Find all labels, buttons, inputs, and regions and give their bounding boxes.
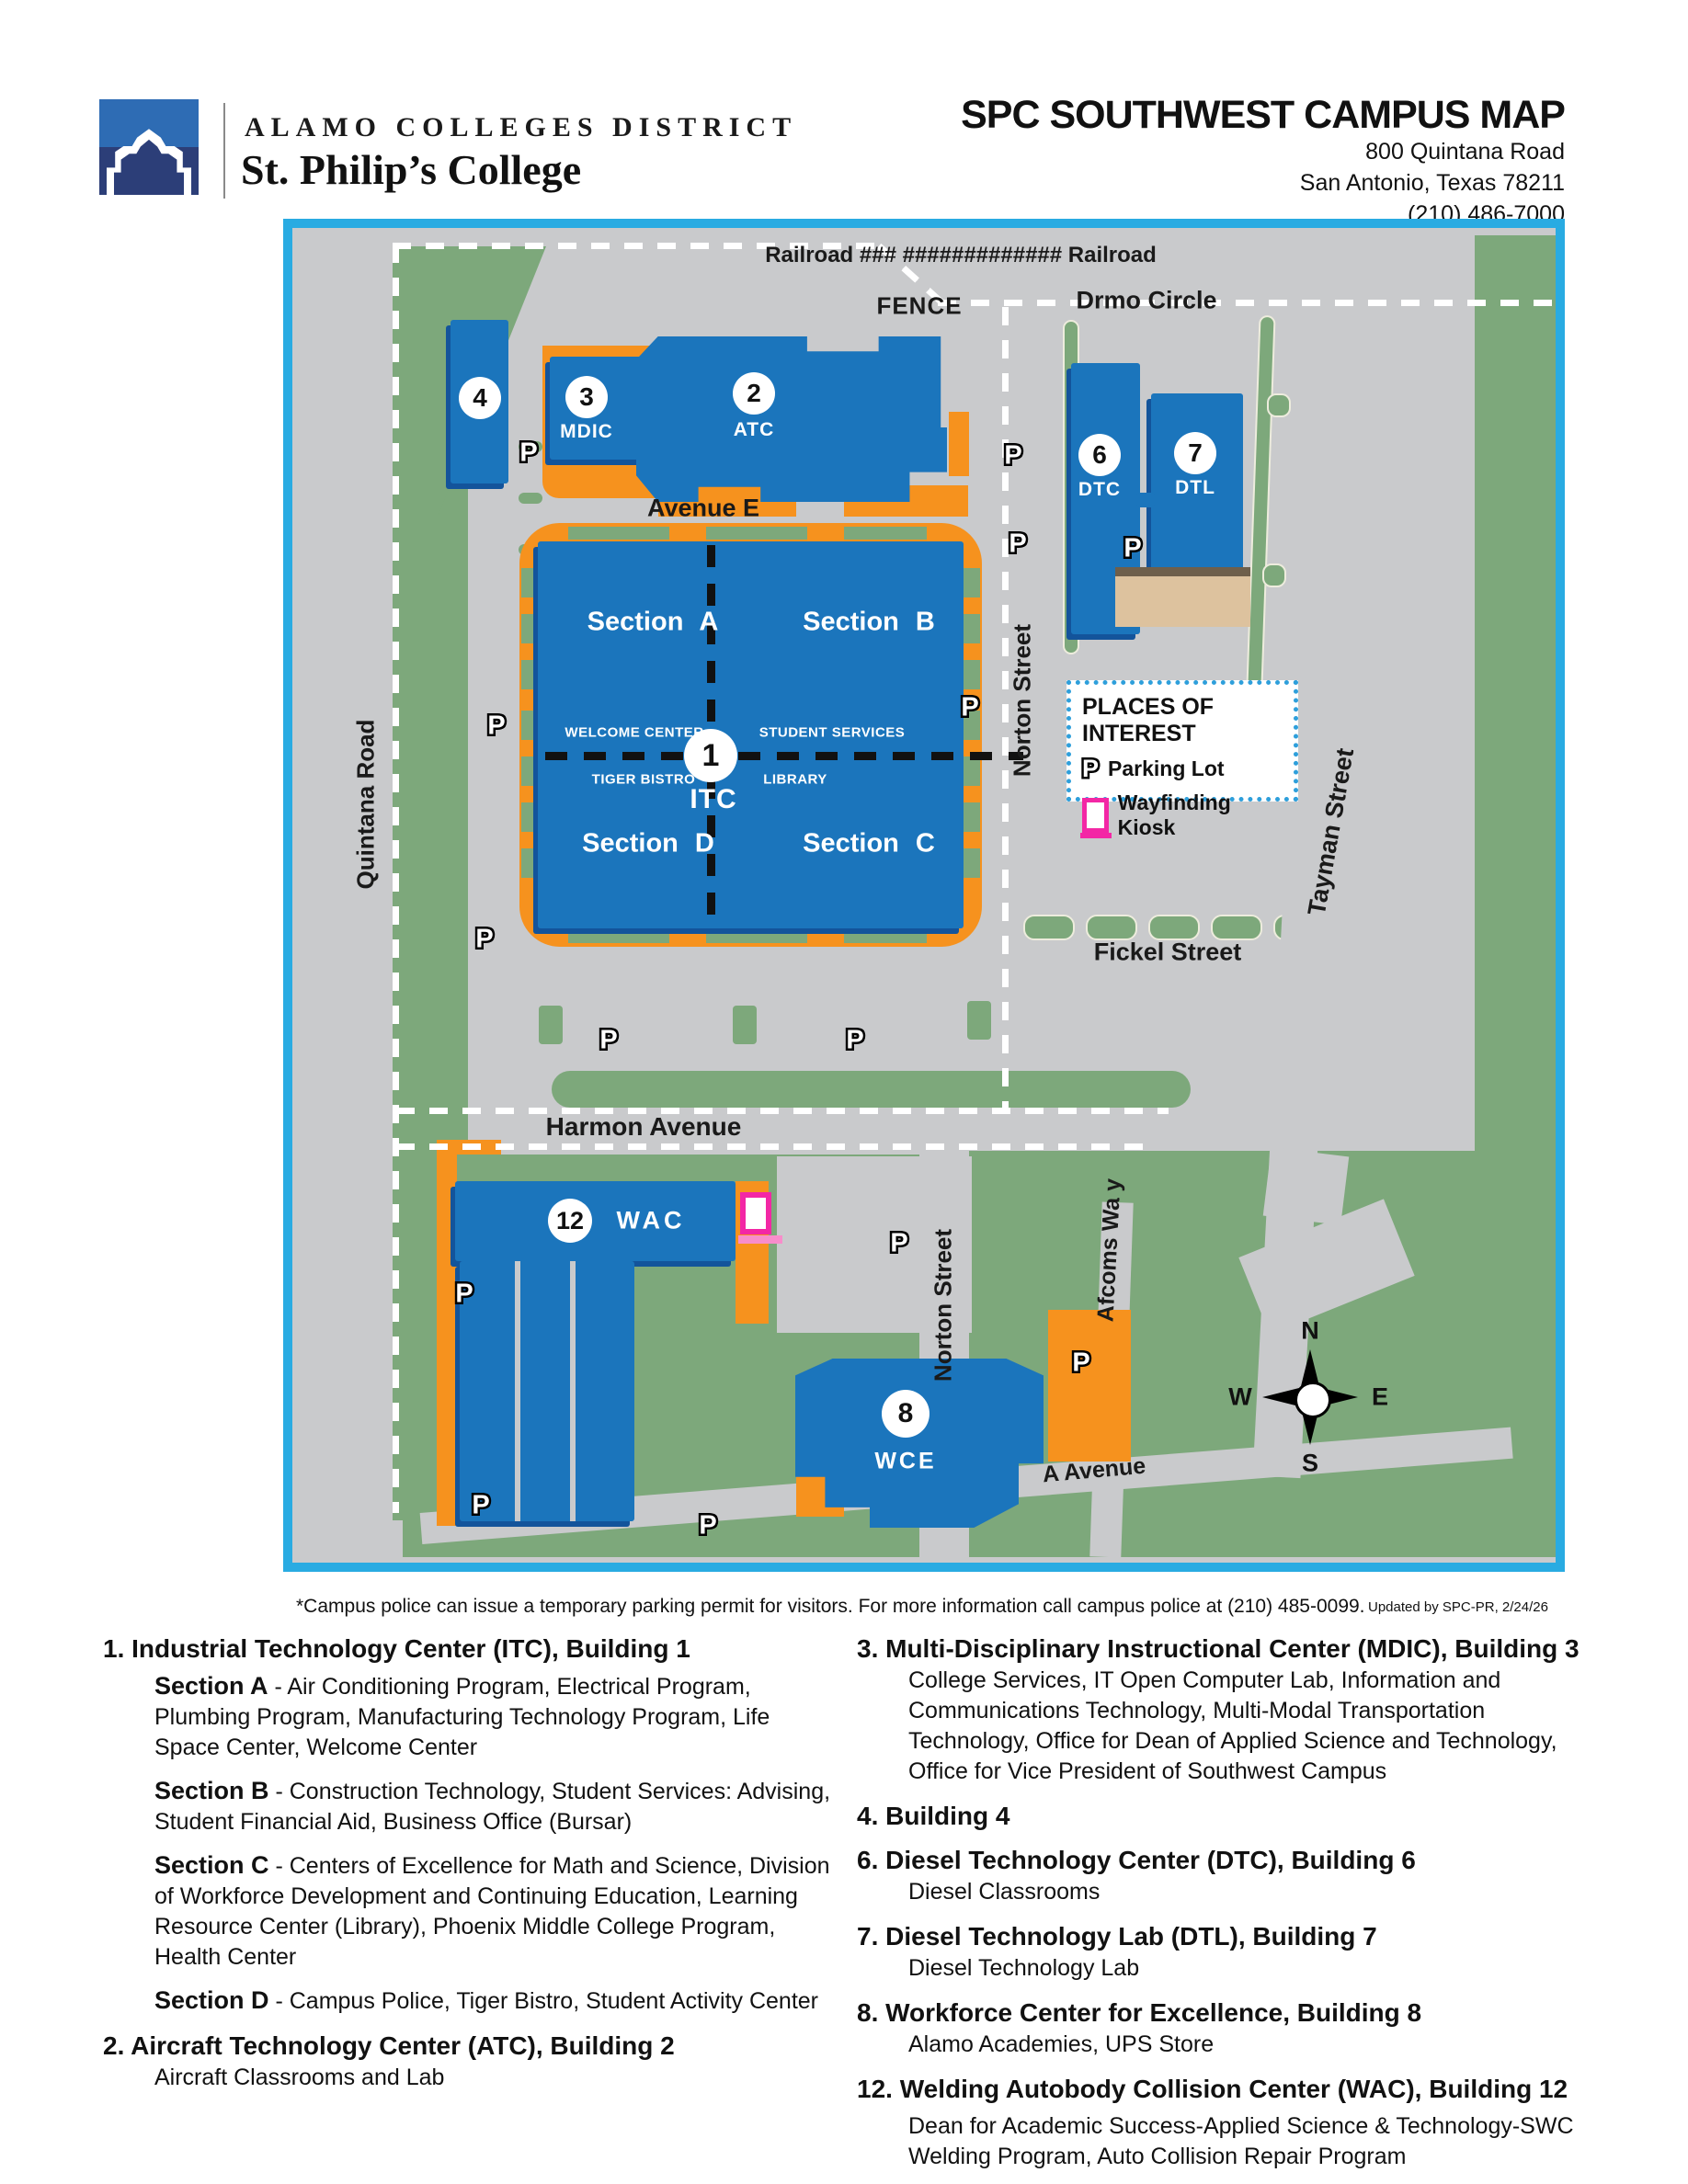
alamo-silhouette-inner bbox=[114, 136, 184, 195]
dtc-code: DTC bbox=[1078, 479, 1121, 501]
parking-marker: P bbox=[455, 1280, 473, 1310]
directory-item: Section B - Construction Technology, Stu… bbox=[154, 1776, 838, 1837]
parking-marker: P bbox=[519, 438, 537, 469]
alamo-colleges-logo bbox=[99, 99, 199, 195]
dtc-badge: 6 bbox=[1078, 434, 1121, 476]
parking-marker: P bbox=[1004, 441, 1021, 472]
ring-tooth bbox=[568, 930, 669, 943]
campus-map: Section A Section B Section D Section C … bbox=[283, 219, 1565, 1572]
itc-welcome-center-label: WELCOME CENTER bbox=[565, 725, 703, 741]
directory-entry: 7. Diesel Technology Lab (DTL), Building… bbox=[857, 1922, 1592, 1984]
wac-slab-gap bbox=[570, 1261, 576, 1521]
mdic-code: MDIC bbox=[560, 421, 613, 443]
directory-item: Alamo Academies, UPS Store bbox=[908, 2030, 1592, 2060]
building-tan bbox=[1115, 567, 1250, 627]
green-harmon-band bbox=[552, 1071, 1191, 1108]
fence-line bbox=[938, 300, 1556, 306]
address-line-1: 800 Quintana Road bbox=[961, 136, 1565, 167]
parking-marker: P bbox=[475, 925, 493, 955]
updated-note: Updated by SPC-PR, 2/24/26 bbox=[1368, 1599, 1548, 1615]
parking-orange-wac-west bbox=[437, 1140, 457, 1526]
directory-entry-title: 12. Welding Autobody Collision Center (W… bbox=[857, 2075, 1592, 2104]
compass-e-label: E bbox=[1372, 1383, 1388, 1412]
itc-section-c-label: Section C bbox=[803, 829, 935, 859]
header-divider bbox=[223, 103, 225, 199]
norton-street-top-label: Norton Street bbox=[1009, 624, 1037, 777]
drmo-circle-label: Drmo Circle bbox=[1076, 287, 1216, 315]
green-pill bbox=[519, 493, 542, 504]
building-wac-low bbox=[460, 1261, 634, 1521]
ring-tooth bbox=[706, 930, 807, 943]
directory-right-column: 3. Multi-Disciplinary Instructional Cent… bbox=[857, 1634, 1592, 2184]
directory-entry-title: 7. Diesel Technology Lab (DTL), Building… bbox=[857, 1922, 1592, 1951]
quintana-road-label: Quintana Road bbox=[352, 720, 381, 890]
parking-marker: P bbox=[961, 693, 978, 723]
green-island bbox=[1262, 563, 1286, 587]
avenue-e-label: Avenue E bbox=[647, 495, 759, 523]
building-4-badge: 4 bbox=[459, 377, 501, 419]
parking-marker: P bbox=[890, 1229, 907, 1259]
ring-tooth bbox=[706, 527, 807, 540]
parking-island bbox=[1148, 915, 1200, 940]
atc-code: ATC bbox=[734, 419, 775, 441]
dtl-badge: 7 bbox=[1174, 432, 1216, 474]
directory-entry-title: 1. Industrial Technology Center (ITC), B… bbox=[103, 1634, 838, 1664]
parking-legend-icon: P bbox=[1082, 755, 1099, 783]
mdic-badge: 3 bbox=[565, 376, 608, 418]
college-name: St. Philip’s College bbox=[241, 145, 581, 194]
directory-entry-title: 6. Diesel Technology Center (DTC), Build… bbox=[857, 1846, 1592, 1875]
itc-code-label: ITC bbox=[690, 784, 736, 815]
campus-map-page: ALAMO COLLEGES DISTRICT St. Philip’s Col… bbox=[0, 0, 1688, 2184]
directory-entry: 8. Workforce Center for Excellence, Buil… bbox=[857, 1998, 1592, 2060]
directory-item: Section D - Campus Police, Tiger Bistro,… bbox=[154, 1985, 838, 2017]
railroad-label: Railroad ### ############# Railroad bbox=[765, 243, 1157, 268]
parking-island bbox=[1023, 915, 1075, 940]
directory-entry: 3. Multi-Disciplinary Instructional Cent… bbox=[857, 1634, 1592, 1787]
directory-item: Section A - Air Conditioning Program, El… bbox=[154, 1671, 838, 1763]
fence-line bbox=[393, 245, 399, 1513]
dtl-code: DTL bbox=[1175, 477, 1215, 499]
itc-divider-horizontal bbox=[545, 752, 1023, 760]
wac-code: WAC bbox=[617, 1207, 686, 1235]
directory-entry-title: 2. Aircraft Technology Center (ATC), Bui… bbox=[103, 2031, 838, 2061]
ring-tooth bbox=[568, 527, 669, 540]
wce-code: WCE bbox=[874, 1449, 936, 1475]
parking-marker: P bbox=[1123, 534, 1141, 564]
parking-marker: P bbox=[846, 1026, 863, 1056]
compass-w-label: W bbox=[1228, 1383, 1251, 1412]
parking-orange-wce-east bbox=[1048, 1310, 1131, 1462]
parking-orange-atc-east bbox=[949, 412, 969, 476]
directory-entry: 1. Industrial Technology Center (ITC), B… bbox=[103, 1634, 838, 2017]
parking-marker: P bbox=[472, 1491, 489, 1521]
compass-n-label: N bbox=[1301, 1317, 1319, 1346]
directory-item: Aircraft Classrooms and Lab bbox=[154, 2063, 838, 2093]
green-island bbox=[1267, 393, 1291, 417]
building-wac-top bbox=[455, 1181, 736, 1261]
map-title-block: SPC SOUTHWEST CAMPUS MAP 800 Quintana Ro… bbox=[961, 94, 1565, 230]
compass-s-label: S bbox=[1302, 1450, 1318, 1478]
address-line-2: San Antonio, Texas 78211 bbox=[961, 167, 1565, 199]
campus-police-note: *Campus police can issue a temporary par… bbox=[296, 1596, 1365, 1618]
ring-tooth bbox=[844, 930, 927, 943]
wac-slab-gap bbox=[515, 1261, 520, 1521]
directory-entry-title: 8. Workforce Center for Excellence, Buil… bbox=[857, 1998, 1592, 2028]
parking-island bbox=[1211, 915, 1262, 940]
directory-item: College Services, IT Open Computer Lab, … bbox=[908, 1666, 1592, 1787]
itc-student-services-label: STUDENT SERVICES bbox=[759, 725, 906, 741]
parking-marker: P bbox=[1072, 1348, 1089, 1379]
itc-tiger-bistro-label: TIGER BISTRO bbox=[592, 772, 696, 788]
district-name: ALAMO COLLEGES DISTRICT bbox=[245, 112, 797, 143]
legend-parking-label: Parking Lot bbox=[1108, 756, 1225, 781]
directory-entry-title: 3. Multi-Disciplinary Instructional Cent… bbox=[857, 1634, 1592, 1664]
parking-marker: P bbox=[699, 1511, 716, 1541]
itc-section-d-label: Section D bbox=[582, 829, 714, 859]
parking-marker: P bbox=[487, 711, 505, 742]
wce-badge: 8 bbox=[882, 1390, 930, 1438]
green-sliver bbox=[1245, 315, 1275, 714]
parking-island bbox=[733, 1006, 757, 1044]
directory-item: Dean for Academic Success-Applied Scienc… bbox=[908, 2111, 1592, 2172]
directory-entry: 6. Diesel Technology Center (DTC), Build… bbox=[857, 1846, 1592, 1907]
parking-island bbox=[1086, 915, 1137, 940]
kiosk-legend-icon bbox=[1082, 798, 1109, 833]
atc-badge: 2 bbox=[733, 372, 775, 415]
legend-kiosk-label: Wayfinding Kiosk bbox=[1118, 791, 1283, 840]
harmon-avenue-label: Harmon Avenue bbox=[546, 1112, 742, 1142]
directory-entry-title: 4. Building 4 bbox=[857, 1802, 1592, 1831]
compass-hub bbox=[1295, 1382, 1331, 1418]
itc-library-label: LIBRARY bbox=[763, 772, 827, 788]
norton-street-bottom-label: Norton Street bbox=[930, 1229, 958, 1382]
parking-marker: P bbox=[599, 1026, 617, 1056]
itc-number-badge: 1 bbox=[684, 729, 737, 782]
building-connector bbox=[1136, 493, 1155, 507]
itc-section-a-label: Section A bbox=[587, 608, 719, 638]
wayfinding-kiosk-icon bbox=[740, 1192, 771, 1234]
wac-badge: 12 bbox=[548, 1199, 592, 1243]
fence-line-harmon-south bbox=[396, 1143, 1148, 1150]
parking-island bbox=[539, 1006, 563, 1044]
directory-item: Section C - Centers of Excellence for Ma… bbox=[154, 1850, 838, 1973]
directory-left-column: 1. Industrial Technology Center (ITC), B… bbox=[103, 1634, 838, 2108]
parking-island bbox=[967, 1001, 991, 1040]
directory-entry: 2. Aircraft Technology Center (ATC), Bui… bbox=[103, 2031, 838, 2093]
gray-building-south-small bbox=[1263, 1147, 1350, 1225]
directory-item: Diesel Classrooms bbox=[908, 1877, 1592, 1907]
page-title: SPC SOUTHWEST CAMPUS MAP bbox=[961, 94, 1565, 136]
building-wce bbox=[795, 1359, 1044, 1528]
directory-entry: 4. Building 4 bbox=[857, 1802, 1592, 1831]
ring-tooth bbox=[844, 527, 927, 540]
places-of-interest-legend: PLACES OF INTEREST P Parking Lot Wayfind… bbox=[1066, 680, 1298, 802]
parking-marker: P bbox=[1009, 529, 1026, 560]
fence-label: FENCE bbox=[876, 292, 962, 321]
fence-line-harmon-north bbox=[396, 1108, 1169, 1114]
itc-section-b-label: Section B bbox=[803, 608, 935, 638]
directory-item: Diesel Technology Lab bbox=[908, 1953, 1592, 1984]
fickel-street-label: Fickel Street bbox=[1094, 938, 1242, 967]
directory-entry: 12. Welding Autobody Collision Center (W… bbox=[857, 2075, 1592, 2172]
legend-title: PLACES OF INTEREST bbox=[1082, 694, 1283, 747]
building-atc bbox=[636, 336, 947, 502]
